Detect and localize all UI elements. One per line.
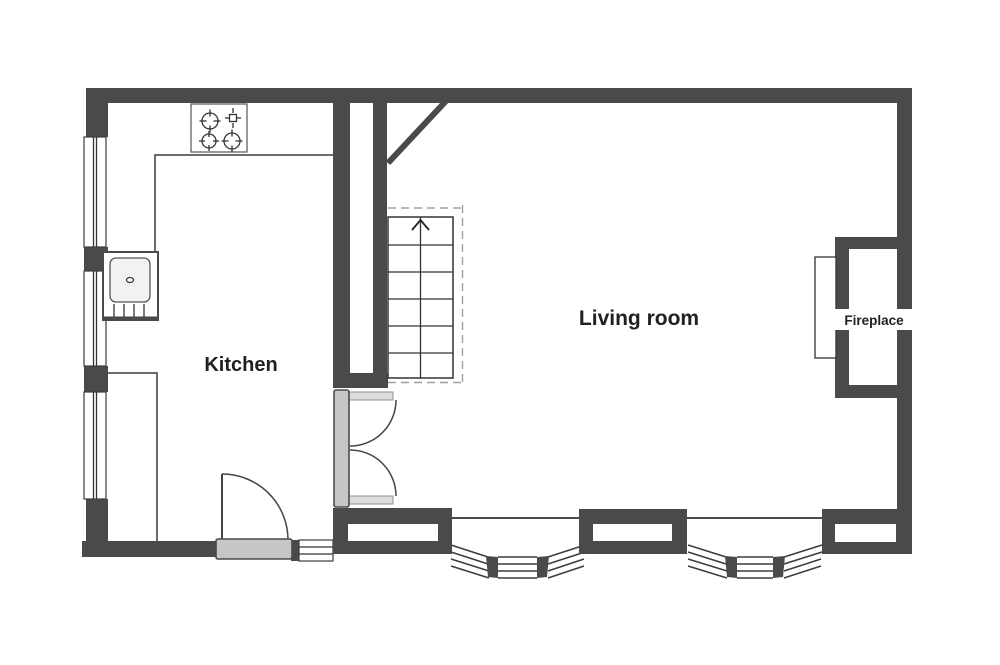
- fireplace-hearth: [815, 257, 836, 358]
- counter-left-edge: [108, 373, 157, 541]
- window-icon: [84, 392, 106, 499]
- staircase: [388, 205, 465, 383]
- counter-top-edge: [155, 155, 333, 252]
- wall-bottom-kitchen: [82, 541, 218, 557]
- wall-top: [88, 88, 912, 103]
- door-threshold: [216, 539, 292, 559]
- bottom-wall-living-room: [333, 508, 912, 578]
- wall-kitchen-east: [333, 103, 350, 375]
- door-panel: [334, 390, 349, 507]
- door-swing-arc: [350, 450, 396, 496]
- floor-plan: Kitchen Living room Fireplace: [0, 0, 1000, 665]
- floor-plan-drawing: Kitchen Living room Fireplace: [0, 0, 1000, 665]
- kitchen-counters: [108, 155, 333, 541]
- wall-stairs-foot: [333, 373, 388, 388]
- door-swing-arc: [222, 474, 288, 540]
- door-frame-tab-top: [349, 392, 393, 400]
- wall-stairs: [373, 103, 387, 383]
- wall-left-segment-3: [84, 366, 108, 392]
- bay-window-right: [688, 545, 822, 578]
- sink-icon: [103, 252, 158, 320]
- french-doors: [334, 390, 396, 507]
- exterior-walls: [82, 88, 912, 561]
- bottom-wall-piers: [333, 508, 912, 554]
- door-frame-tab-bottom: [349, 496, 393, 504]
- door-swing-arc: [350, 400, 396, 446]
- bay-window-left: [451, 545, 585, 578]
- stove-icon: [191, 104, 247, 153]
- kitchen-label: Kitchen: [204, 354, 277, 376]
- fireplace-label: Fireplace: [844, 313, 904, 328]
- window-icon: [84, 137, 106, 247]
- living-room-label: Living room: [579, 307, 699, 330]
- kitchen-door: [209, 474, 292, 559]
- window-icon: [299, 540, 333, 561]
- wall-diagonal: [388, 101, 446, 163]
- wall-left-segment-1: [86, 88, 108, 137]
